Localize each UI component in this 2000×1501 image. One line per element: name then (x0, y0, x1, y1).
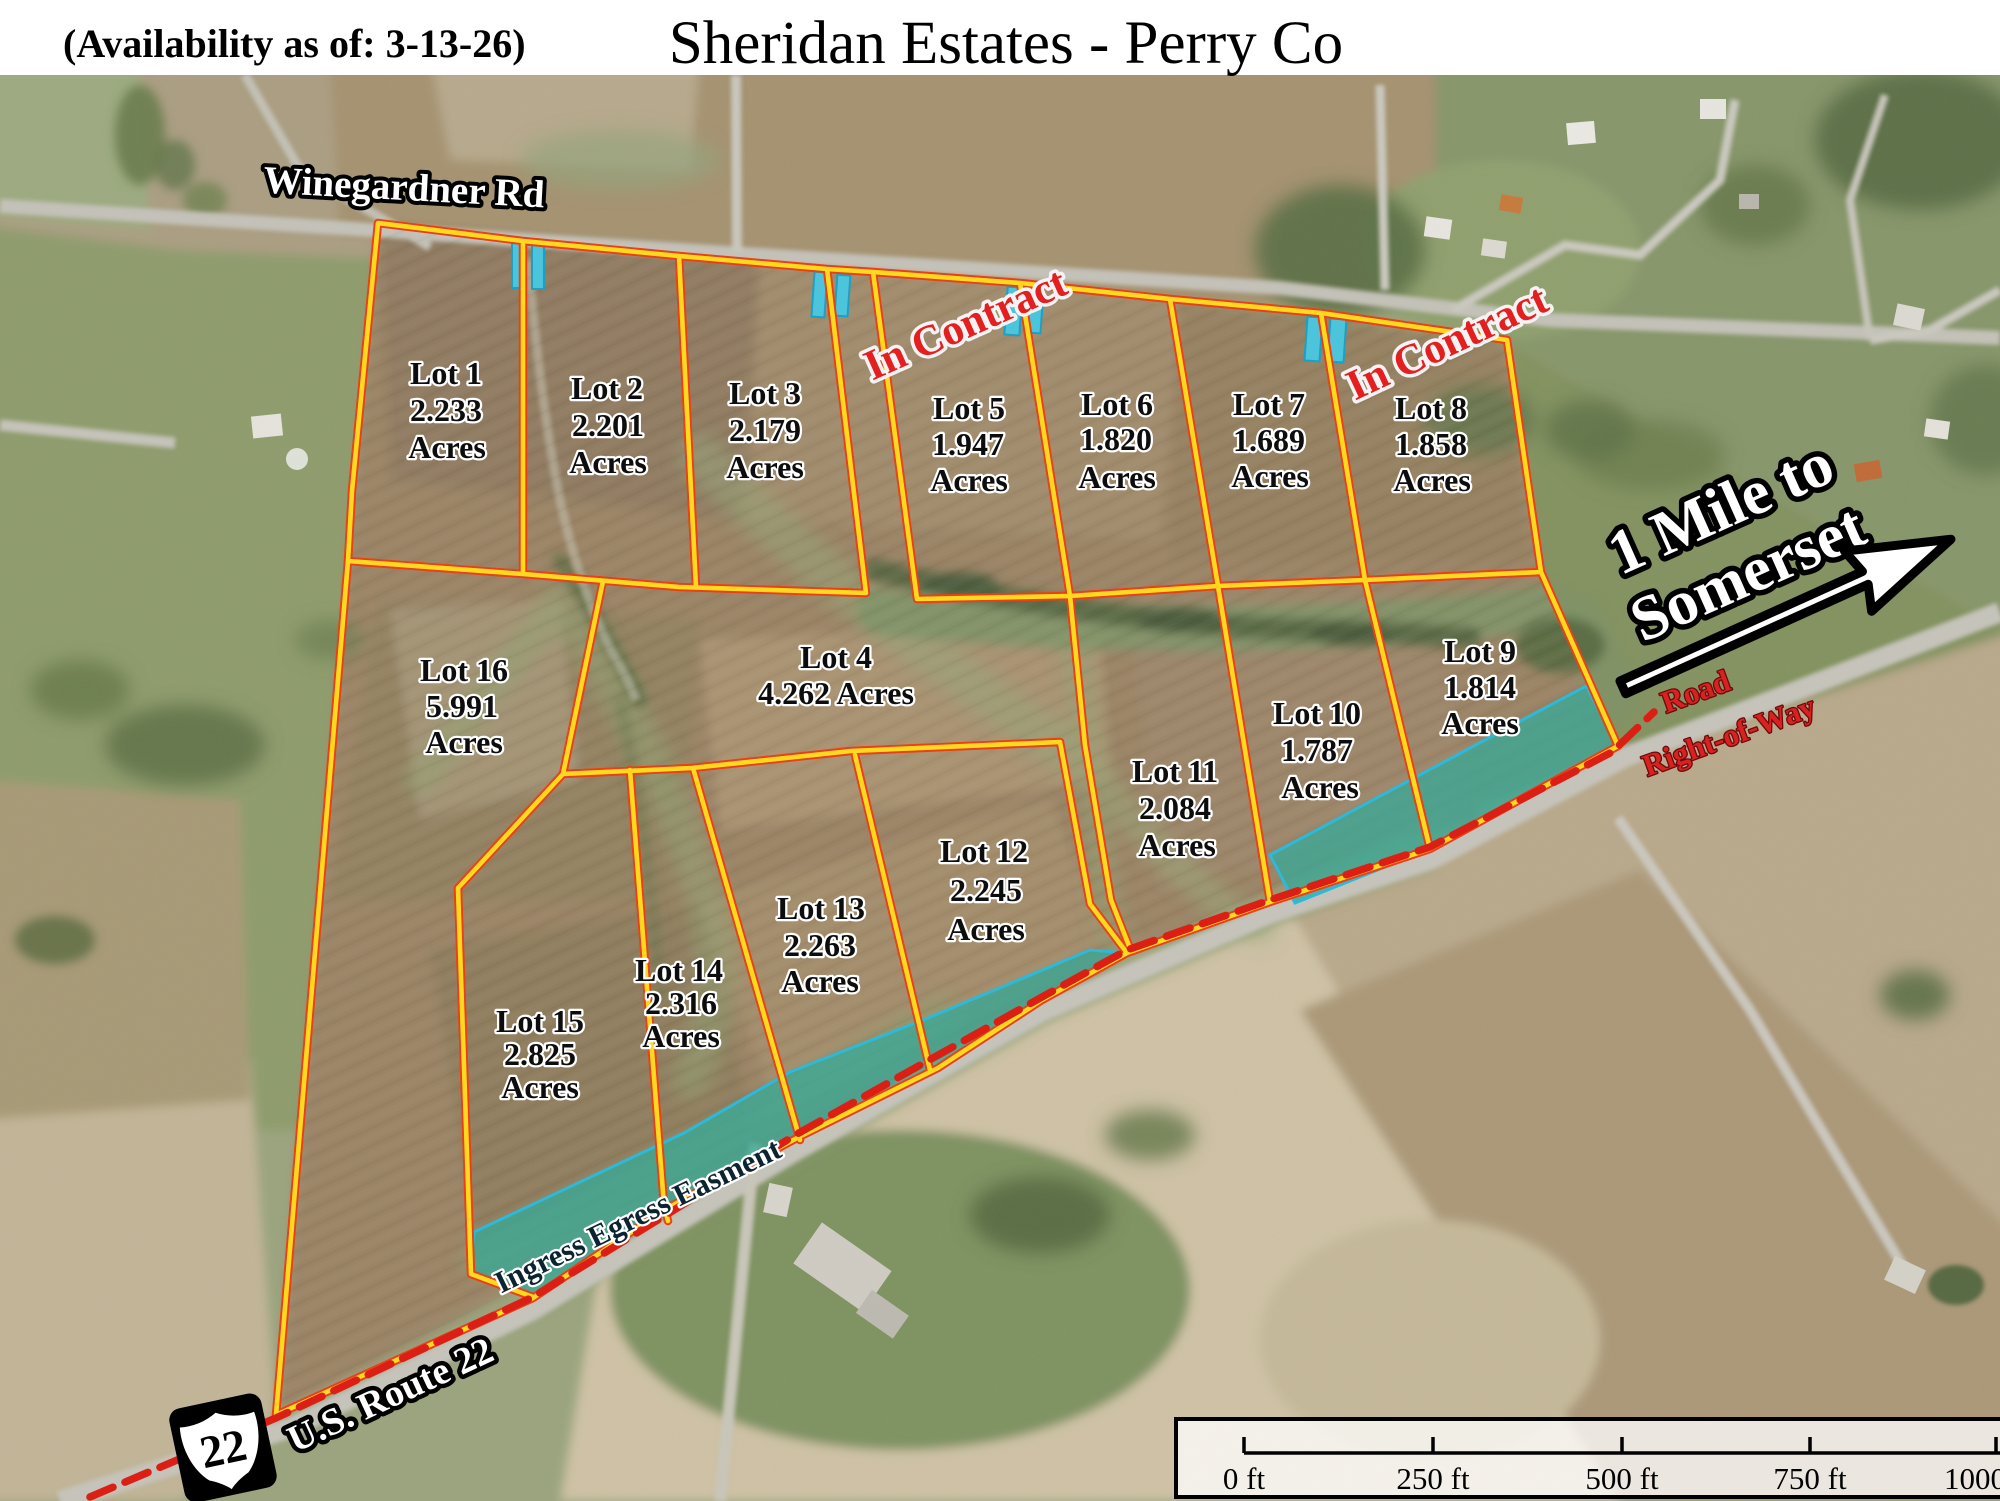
svg-text:Acres: Acres (1138, 827, 1216, 863)
svg-text:Acres: Acres (642, 1018, 720, 1054)
svg-text:2.084: 2.084 (1139, 790, 1211, 826)
svg-text:Lot 9: Lot 9 (1444, 633, 1516, 669)
svg-text:250 ft: 250 ft (1396, 1461, 1470, 1496)
svg-text:Lot 7: Lot 7 (1233, 386, 1305, 422)
svg-text:1000: 1000 (1944, 1461, 2000, 1496)
svg-text:4.262 Acres: 4.262 Acres (758, 675, 914, 711)
svg-text:Lot 8: Lot 8 (1395, 390, 1467, 426)
svg-text:1.814: 1.814 (1444, 669, 1516, 705)
svg-text:1.820: 1.820 (1080, 421, 1152, 457)
svg-text:Acres: Acres (501, 1069, 579, 1105)
svg-text:Acres: Acres (781, 963, 859, 999)
svg-text:1.787: 1.787 (1281, 732, 1353, 768)
svg-text:750 ft: 750 ft (1773, 1461, 1847, 1496)
svg-text:Lot 6: Lot 6 (1081, 386, 1153, 422)
svg-text:Sheridan Estates - Perry Co: Sheridan Estates - Perry Co (669, 10, 1343, 77)
svg-text:2.245: 2.245 (950, 872, 1022, 908)
svg-text:Acres: Acres (726, 449, 804, 485)
svg-text:Acres: Acres (1231, 458, 1309, 494)
svg-text:Lot 2: Lot 2 (571, 370, 643, 406)
svg-text:2.201: 2.201 (572, 407, 644, 443)
svg-text:5.991: 5.991 (426, 688, 498, 724)
svg-text:Lot 14: Lot 14 (635, 952, 723, 988)
svg-text:Acres: Acres (947, 911, 1025, 947)
svg-text:Lot 10: Lot 10 (1273, 695, 1361, 731)
svg-text:1.947: 1.947 (932, 426, 1004, 462)
svg-text:Lot 16: Lot 16 (420, 652, 508, 688)
svg-text:500 ft: 500 ft (1585, 1461, 1659, 1496)
svg-text:2.316: 2.316 (645, 985, 717, 1021)
svg-text:Acres: Acres (1393, 462, 1471, 498)
svg-text:Acres: Acres (1441, 705, 1519, 741)
svg-text:2.263: 2.263 (784, 927, 856, 963)
svg-text:Acres: Acres (425, 724, 503, 760)
svg-text:Lot 15: Lot 15 (496, 1003, 584, 1039)
svg-text:1.689: 1.689 (1233, 422, 1305, 458)
svg-text:Lot 12: Lot 12 (940, 833, 1028, 869)
svg-text:Lot 3: Lot 3 (729, 375, 801, 411)
svg-text:2.825: 2.825 (504, 1036, 576, 1072)
svg-text:Lot 11: Lot 11 (1132, 753, 1218, 789)
svg-text:2.179: 2.179 (729, 412, 801, 448)
svg-text:Lot 13: Lot 13 (777, 890, 865, 926)
svg-text:Acres: Acres (930, 462, 1008, 498)
svg-text:(Availability as of: 3-13-26): (Availability as of: 3-13-26) (63, 21, 526, 66)
svg-text:0 ft: 0 ft (1223, 1461, 1266, 1496)
svg-text:1.858: 1.858 (1395, 426, 1467, 462)
svg-text:2.233: 2.233 (410, 392, 482, 428)
svg-text:Acres: Acres (1281, 769, 1359, 805)
svg-text:Lot 1: Lot 1 (410, 355, 482, 391)
svg-text:Acres: Acres (569, 444, 647, 480)
svg-text:Lot 5: Lot 5 (933, 390, 1005, 426)
svg-text:Acres: Acres (1078, 459, 1156, 495)
svg-text:Lot 4: Lot 4 (800, 639, 872, 675)
svg-text:Acres: Acres (408, 429, 486, 465)
